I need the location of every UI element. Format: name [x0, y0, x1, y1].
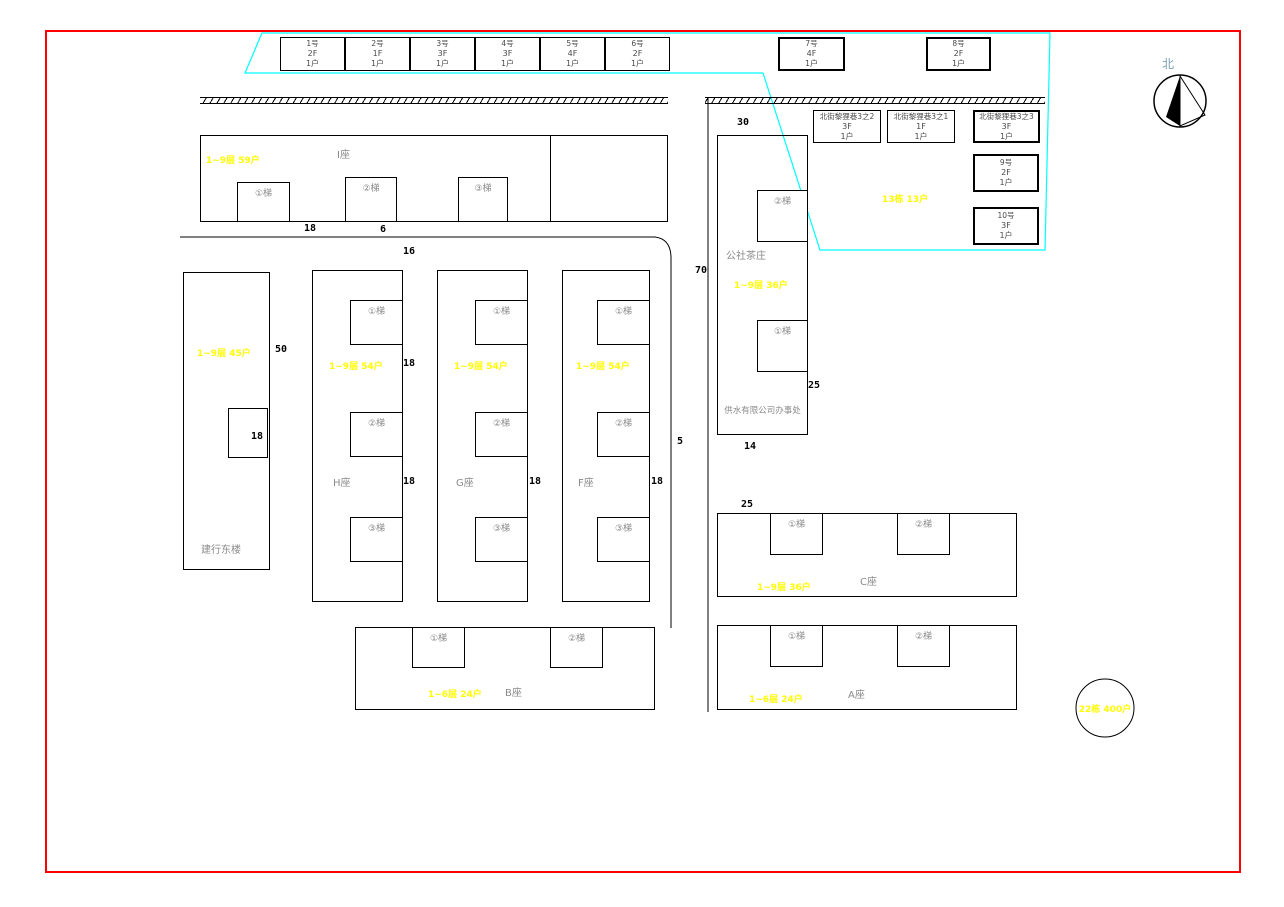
house-9-floors: 2F	[1001, 168, 1011, 178]
building-g-name: G座	[456, 474, 474, 489]
house-7: 7号 4F 1户	[778, 37, 845, 71]
house-1-units: 1户	[306, 59, 319, 69]
dim-tea-top: 30	[737, 117, 749, 128]
lane-house-3-3-units: 1户	[1000, 132, 1013, 142]
dim-i-gap: 6	[380, 224, 386, 235]
building-c-annotation: 1~9层 36户	[757, 580, 811, 593]
house-9-units: 1户	[999, 178, 1012, 188]
building-bank-name: 建行东楼	[201, 541, 241, 556]
dim-f-side: 18	[651, 476, 663, 487]
building-tea-stair-2: ②梯	[757, 190, 808, 242]
house-3: 3号 3F 1户	[410, 37, 475, 71]
building-h-stair-3: ③梯	[350, 517, 403, 562]
wall-hatch-right	[705, 97, 1045, 104]
house-6-units: 1户	[631, 59, 644, 69]
building-i-name: I座	[337, 146, 350, 161]
building-f-stair-2: ②梯	[597, 412, 650, 457]
north-label: 北	[1162, 55, 1174, 72]
house-5: 5号 4F 1户	[540, 37, 605, 71]
house-3-no: 3号	[436, 39, 448, 49]
building-a-annotation: 1~6层 24户	[749, 692, 803, 705]
dim-c-top: 25	[741, 499, 753, 510]
site-plan-canvas: 北 1号 2F 1户 2号 1F 1户 3号 3F 1户 4号 3F 1户 5号…	[0, 0, 1284, 907]
house-9-no: 9号	[1000, 158, 1012, 168]
building-bank-annotation: 1~9层 45户	[197, 346, 251, 359]
building-g-stair-2: ②梯	[475, 412, 528, 457]
house-3-units: 1户	[436, 59, 449, 69]
building-h-stair-2: ②梯	[350, 412, 403, 457]
building-b-stair-2: ②梯	[550, 627, 603, 668]
house-10-floors: 3F	[1001, 221, 1011, 231]
lane-house-3-1-no: 北街黎狸巷3之1	[894, 112, 949, 122]
house-5-units: 1户	[566, 59, 579, 69]
building-i-stair-3: ③梯	[458, 177, 508, 222]
total-badge-text: 22栋 400户	[1076, 702, 1134, 715]
building-a-name: A座	[848, 686, 865, 701]
building-b-name: B座	[505, 684, 522, 699]
house-4-floors: 3F	[503, 49, 513, 59]
house-1: 1号 2F 1户	[280, 37, 345, 71]
dim-g-side: 18	[529, 476, 541, 487]
house-6: 6号 2F 1户	[605, 37, 670, 71]
house-4-no: 4号	[501, 39, 513, 49]
building-a-stair-2: ②梯	[897, 625, 950, 667]
building-h-stair-1: ①梯	[350, 300, 403, 345]
house-2: 2号 1F 1户	[345, 37, 410, 71]
lane-house-3-3: 北街黎狸巷3之3 3F 1户	[973, 110, 1040, 143]
building-tea-annotation: 1~9层 36户	[734, 278, 788, 291]
house-8-units: 1户	[952, 59, 965, 69]
lane-house-3-2-no: 北街黎狸巷3之2	[820, 112, 875, 122]
house-6-no: 6号	[631, 39, 643, 49]
lane-house-3-2-units: 1户	[840, 132, 853, 142]
house-5-floors: 4F	[568, 49, 578, 59]
building-f-name: F座	[578, 474, 594, 489]
house-8-floors: 2F	[954, 49, 964, 59]
house-7-floors: 4F	[807, 49, 817, 59]
dim-road-width-top: 16	[403, 246, 415, 257]
house-10: 10号 3F 1户	[973, 207, 1039, 245]
dim-h-lower: 18	[403, 476, 415, 487]
water-company-office-label: 供水有限公司办事处	[714, 404, 811, 416]
building-f-annotation: 1~9层 54户	[576, 359, 630, 372]
building-g-annotation: 1~9层 54户	[454, 359, 508, 372]
house-10-units: 1户	[999, 231, 1012, 241]
building-tea-stair-1: ①梯	[757, 320, 808, 372]
building-h-annotation: 1~9层 54户	[329, 359, 383, 372]
building-f-stair-3: ③梯	[597, 517, 650, 562]
house-2-floors: 1F	[373, 49, 383, 59]
house-2-no: 2号	[371, 39, 383, 49]
dim-tea-side: 25	[808, 380, 820, 391]
house-7-no: 7号	[805, 39, 817, 49]
building-i-annotation: 1~9层 59户	[206, 153, 260, 166]
lane-house-3-2: 北街黎狸巷3之2 3F 1户	[813, 110, 881, 143]
dim-bank-height: 50	[275, 344, 287, 355]
house-6-floors: 2F	[633, 49, 643, 59]
house-3-floors: 3F	[438, 49, 448, 59]
wall-hatch-left	[200, 97, 668, 104]
lane-total-annotation: 13栋 13户	[882, 192, 928, 205]
building-c-name: C座	[860, 573, 877, 588]
house-9: 9号 2F 1户	[973, 154, 1039, 192]
building-b-annotation: 1~6层 24户	[428, 687, 482, 700]
building-f-stair-1: ①梯	[597, 300, 650, 345]
house-5-no: 5号	[566, 39, 578, 49]
house-2-units: 1户	[371, 59, 384, 69]
dim-road-narrow: 5	[677, 436, 683, 447]
building-i-stair-2: ②梯	[345, 177, 397, 222]
building-a-stair-1: ①梯	[770, 625, 823, 667]
building-b-stair-1: ①梯	[412, 627, 465, 668]
dim-tea-bottom: 14	[744, 441, 756, 452]
house-1-floors: 2F	[308, 49, 318, 59]
lane-house-3-1-floors: 1F	[916, 122, 926, 132]
house-7-units: 1户	[805, 59, 818, 69]
house-1-no: 1号	[306, 39, 318, 49]
house-8-no: 8号	[952, 39, 964, 49]
building-h-name: H座	[333, 474, 351, 489]
building-tea-name: 公社茶庄	[726, 247, 766, 262]
dim-h-upper: 18	[403, 358, 415, 369]
building-i-divider	[550, 135, 551, 222]
house-4: 4号 3F 1户	[475, 37, 540, 71]
house-10-no: 10号	[997, 211, 1014, 221]
dim-road-length: 70	[695, 265, 707, 276]
dim-bank-notch: 18	[251, 431, 263, 442]
building-c-stair-1: ①梯	[770, 513, 823, 555]
dim-i-stair-gap: 18	[304, 223, 316, 234]
lane-house-3-1-units: 1户	[914, 132, 927, 142]
house-8: 8号 2F 1户	[926, 37, 991, 71]
lane-house-3-3-floors: 3F	[1002, 122, 1012, 132]
lane-house-3-3-no: 北街黎狸巷3之3	[979, 112, 1034, 122]
house-4-units: 1户	[501, 59, 514, 69]
building-g-stair-1: ①梯	[475, 300, 528, 345]
building-c-stair-2: ②梯	[897, 513, 950, 555]
building-i-stair-1: ①梯	[237, 182, 290, 222]
lane-house-3-2-floors: 3F	[842, 122, 852, 132]
building-g-stair-3: ③梯	[475, 517, 528, 562]
lane-house-3-1: 北街黎狸巷3之1 1F 1户	[887, 110, 955, 143]
